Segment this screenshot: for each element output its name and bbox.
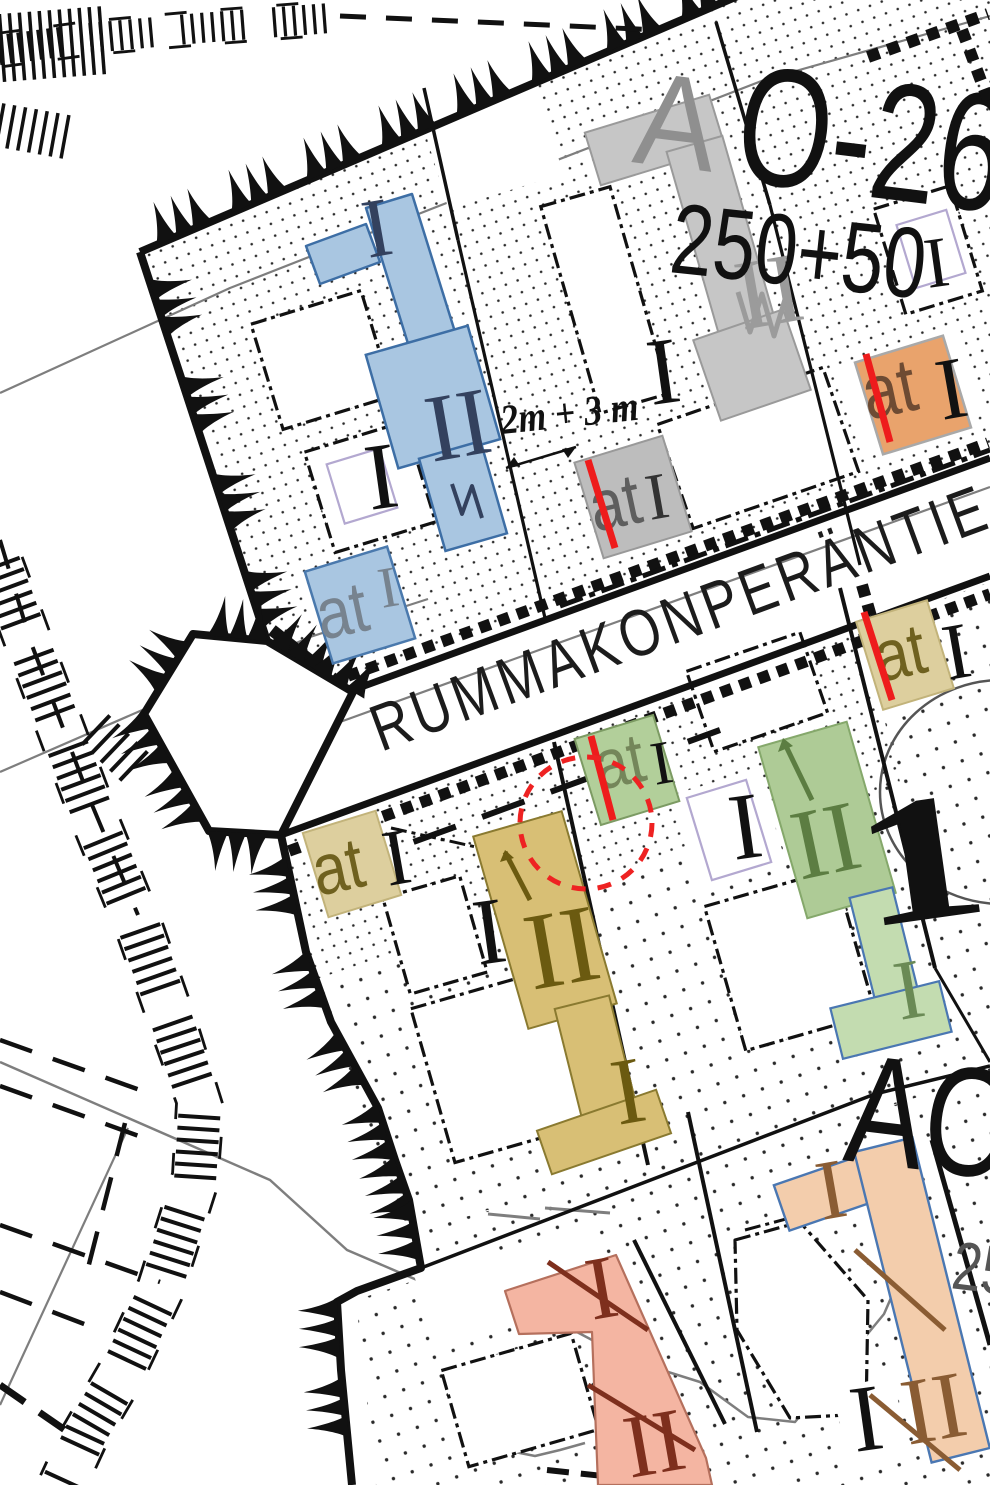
- svg-text:1: 1: [842, 752, 990, 967]
- svg-text:AO: AO: [838, 1022, 990, 1214]
